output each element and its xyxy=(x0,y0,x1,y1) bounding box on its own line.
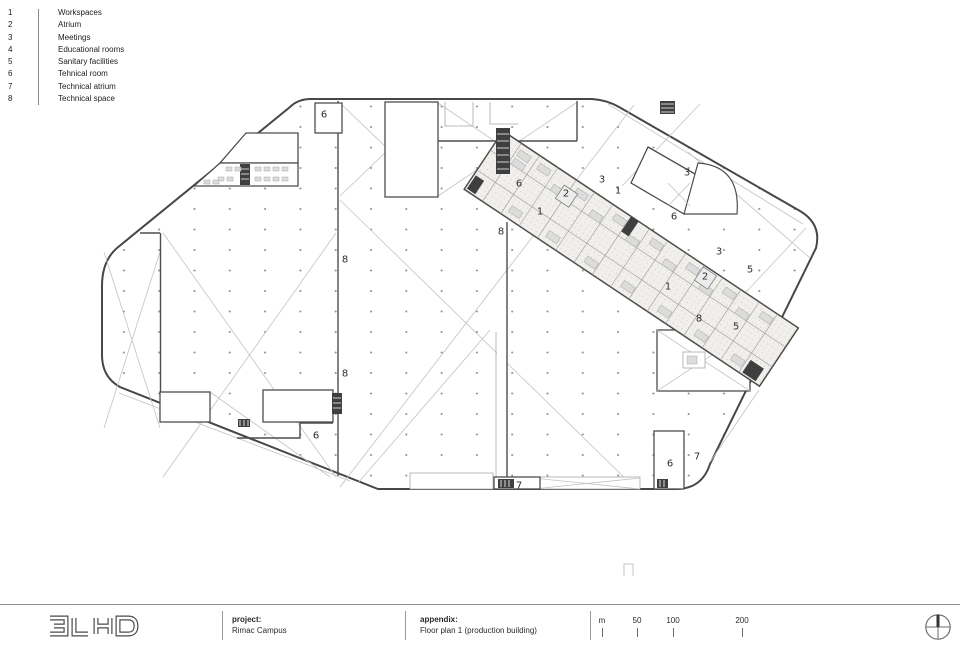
project-block: project: Rimac Campus xyxy=(232,615,287,636)
scale-tick xyxy=(637,628,638,637)
room-number-label: 1 xyxy=(537,207,543,218)
room-number-label: 3 xyxy=(684,168,690,179)
room-number-label: 8 xyxy=(498,227,504,238)
titleblock-divider xyxy=(405,611,406,640)
room-number-label: 6 xyxy=(667,459,673,470)
room-number-label: 6 xyxy=(671,212,677,223)
room-outline xyxy=(220,133,298,163)
titleblock-divider xyxy=(222,611,223,640)
room-outline xyxy=(385,102,438,197)
room-number-label: 2 xyxy=(702,272,708,283)
room-number-label: 1 xyxy=(665,282,671,293)
room-number-label: 7 xyxy=(516,481,522,492)
north-arrow-icon xyxy=(922,611,956,643)
room-number-label: 6 xyxy=(516,179,522,190)
scale-tick xyxy=(602,628,603,637)
technical-room-6-top xyxy=(315,103,342,133)
room-number-label: 8 xyxy=(696,314,702,325)
appendix-block: appendix: Floor plan 1 (production build… xyxy=(420,615,537,636)
scale-mark: 100 xyxy=(658,616,688,625)
appendix-value: Floor plan 1 (production building) xyxy=(420,626,537,635)
project-label: project: xyxy=(232,615,261,624)
room-number-label: 6 xyxy=(313,431,319,442)
room-number-label: 2 xyxy=(563,189,569,200)
room-number-label: 3 xyxy=(599,175,605,186)
3lhd-logo xyxy=(46,610,156,642)
room-number-label: 5 xyxy=(733,322,739,333)
scale-unit: m xyxy=(587,616,617,625)
door-mark xyxy=(624,564,633,576)
project-value: Rimac Campus xyxy=(232,626,287,635)
room-number-label: 5 xyxy=(747,265,753,276)
floor-plan-sheet: 1Workspaces 2Atrium 3Meetings 4Education… xyxy=(0,0,960,645)
room-number-label: 6 xyxy=(321,110,327,121)
titleblock-rule xyxy=(0,604,960,605)
floor-plan-drawing: 688678612313612358567 xyxy=(0,0,960,600)
scale-mark: 50 xyxy=(622,616,652,625)
room-number-label: 1 xyxy=(615,186,621,197)
room-number-label: 8 xyxy=(342,369,348,380)
scale-tick xyxy=(742,628,743,637)
appendix-label: appendix: xyxy=(420,615,458,624)
scale-mark: 200 xyxy=(727,616,757,625)
room-number-label: 8 xyxy=(342,255,348,266)
scale-tick xyxy=(673,628,674,637)
room-number-label: 3 xyxy=(716,247,722,258)
room-number-label: 7 xyxy=(694,452,700,463)
